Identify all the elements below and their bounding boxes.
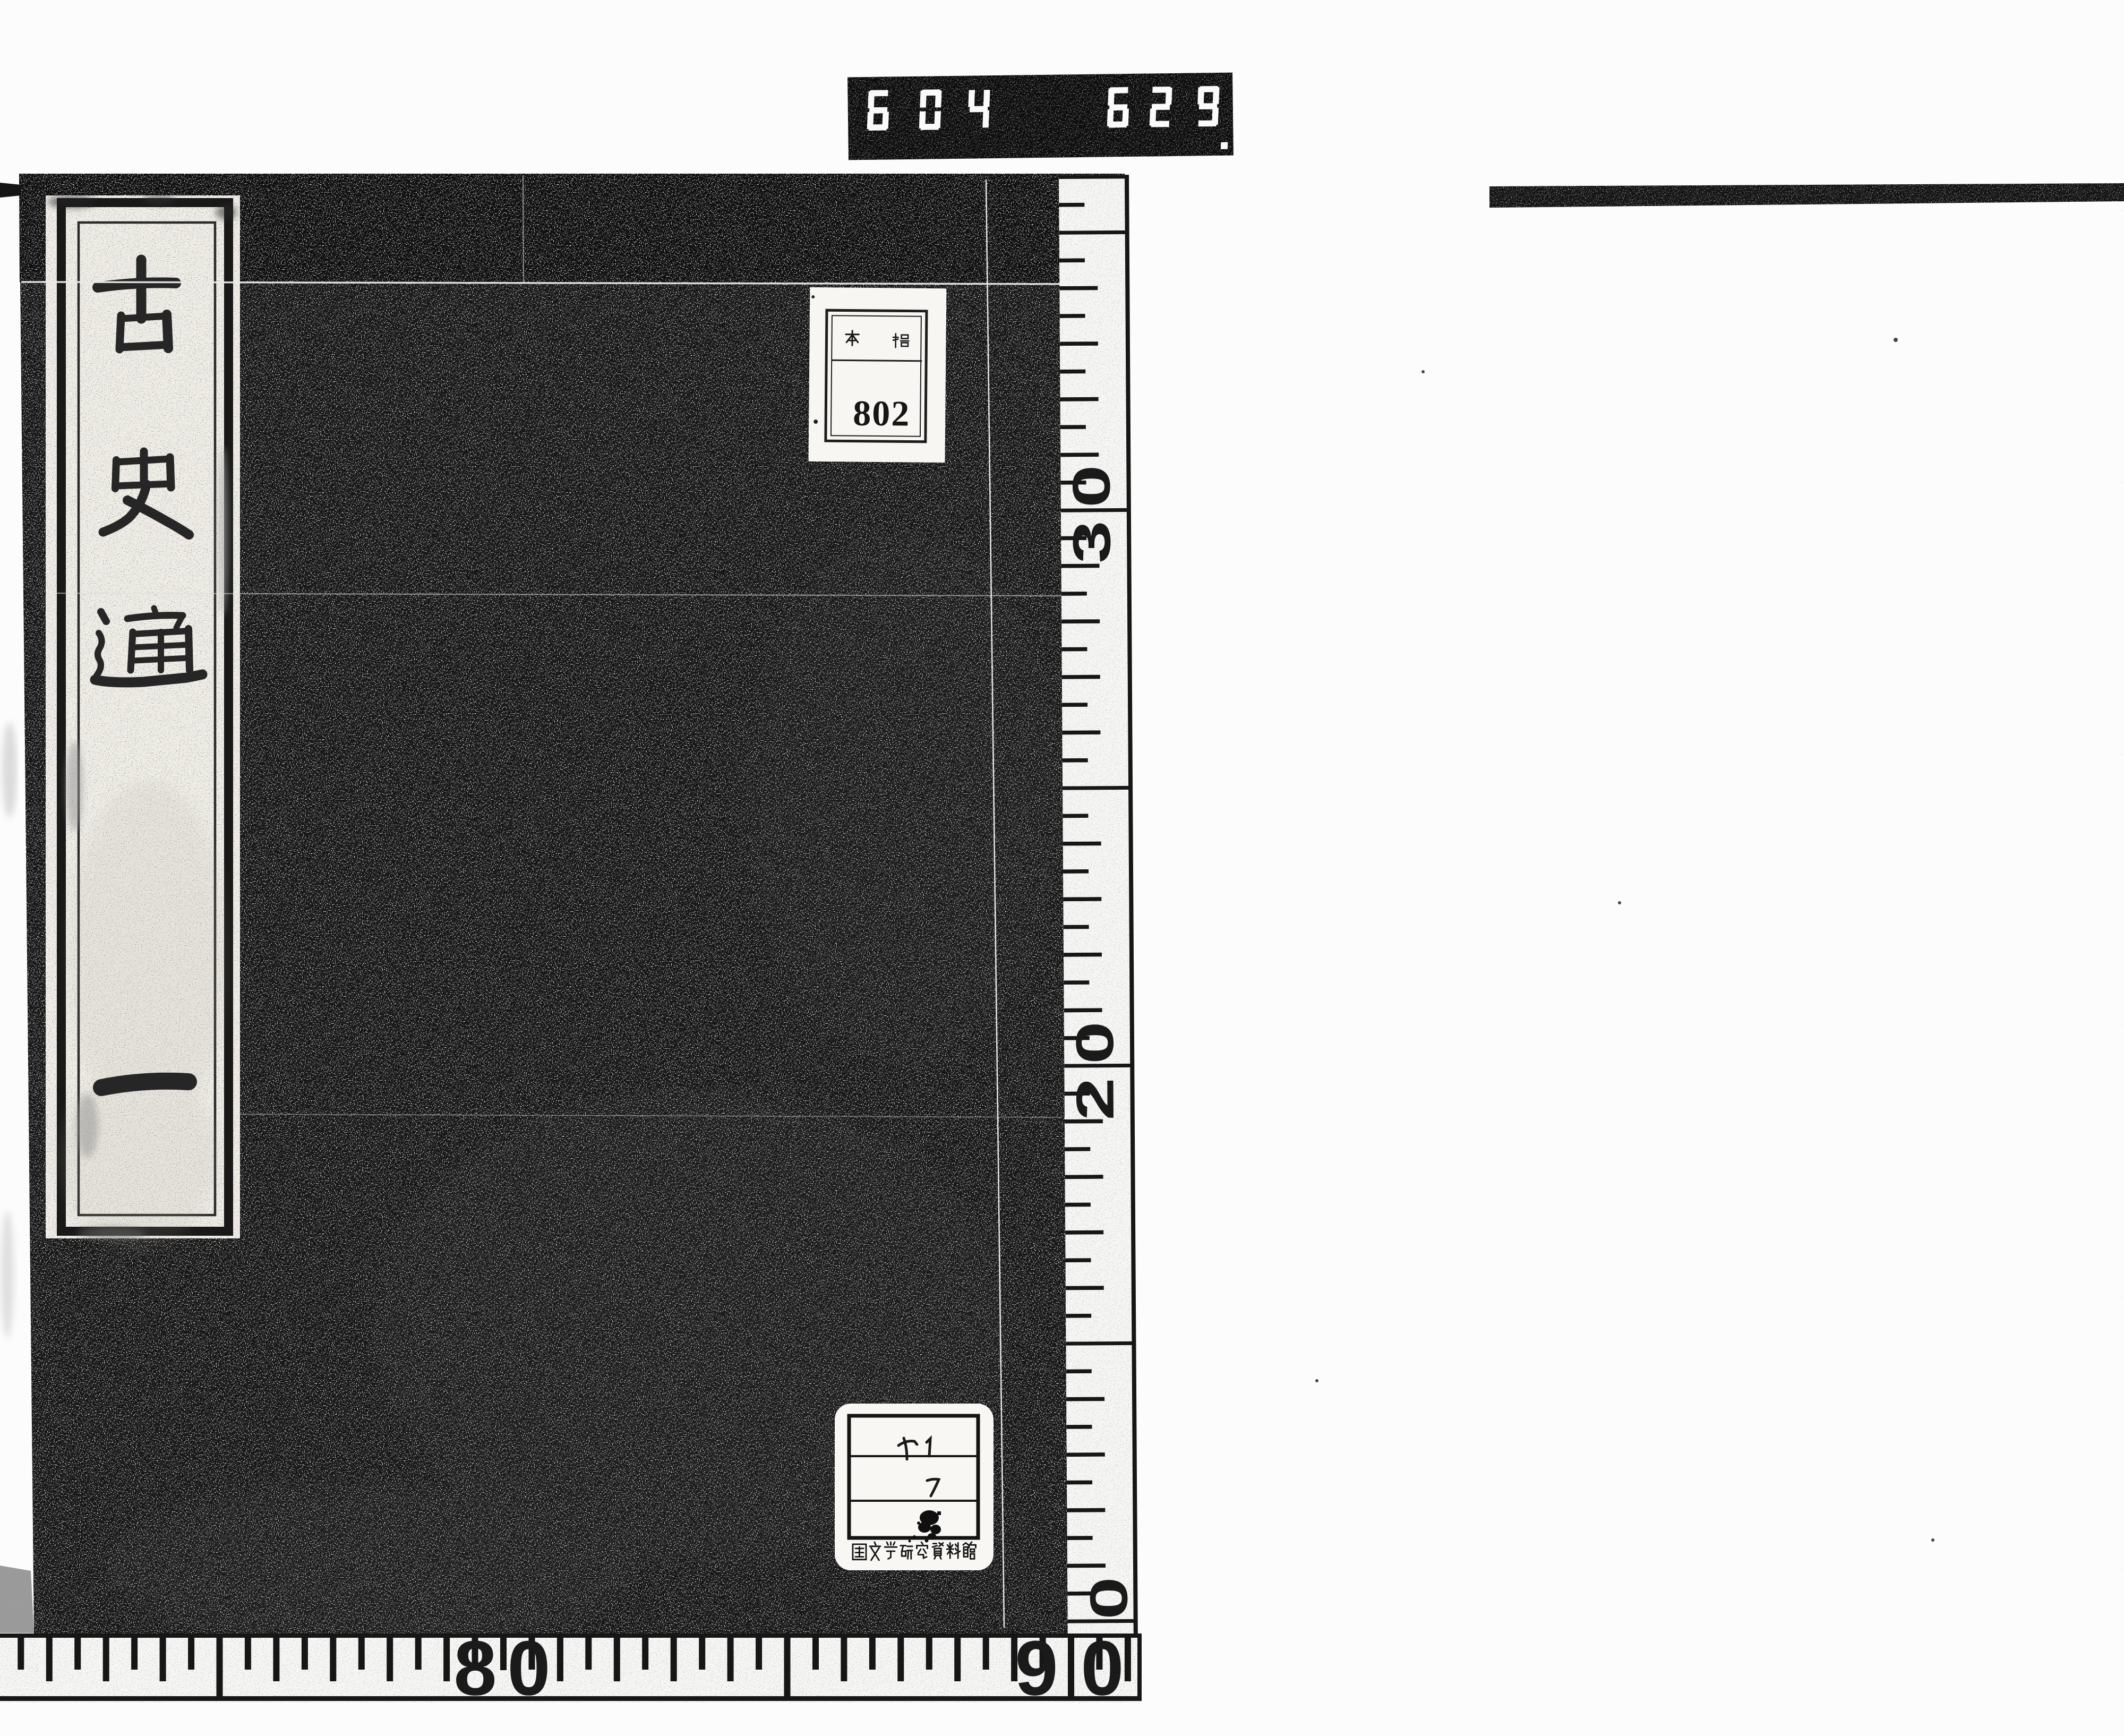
svg-text:0: 0 <box>507 1625 550 1712</box>
svg-text:0: 0 <box>1081 1625 1124 1712</box>
svg-text:9: 9 <box>1015 1625 1058 1712</box>
svg-text:802: 802 <box>853 393 911 434</box>
svg-text:8: 8 <box>453 1625 496 1712</box>
svg-text:2: 2 <box>1066 1077 1125 1121</box>
svg-text:0: 0 <box>1065 1021 1125 1064</box>
svg-text:0: 0 <box>1062 465 1121 508</box>
svg-text:0: 0 <box>1079 1577 1138 1620</box>
svg-text:3: 3 <box>1062 520 1121 563</box>
